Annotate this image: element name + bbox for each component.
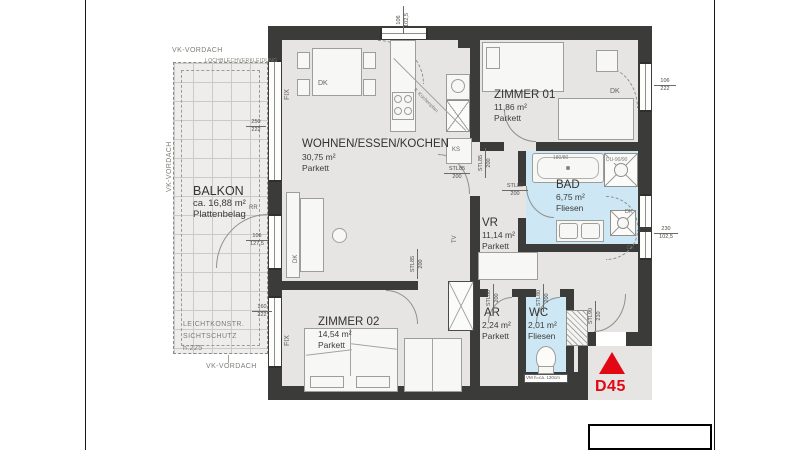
dim-door-bad: STL80200 [502,183,528,198]
pillow-zimmer02 [310,376,344,388]
nightstand-zimmer01 [596,50,618,72]
dk-label-zimmer01-window: DK [610,88,620,95]
dk-label-top-window: DK [318,80,328,87]
sofa-back [286,192,300,278]
dim-door-zimmer01: STL85200 [478,148,493,178]
vk-vordach-top-label: VK-VORDACH [172,47,223,54]
washing-machine-drum [617,217,629,229]
room-floor-zimmer01: Parkett [494,114,521,123]
dining-chair [297,79,310,96]
glazing-living-fix [269,60,281,182]
title-block-box [588,424,712,450]
dim-zimmer01-window: 106222 [654,78,676,93]
dk-label-balcony-door: DK [293,255,299,263]
unit-label: D45 [595,378,626,396]
coffee-table [332,228,347,243]
room-floor-bad: Fliesen [556,204,583,213]
sideboard-vr [478,252,538,280]
glazing-balcony-door [269,214,281,270]
room-area-zimmer01: 11,86 m² [494,103,527,112]
sofa-seat [300,198,324,272]
dim-door-wc: STL80200 [536,284,551,312]
washbasin [559,223,578,239]
page-edge-right [714,0,715,450]
fix-label-living: FIX [284,89,291,100]
dresser-zimmer01 [558,98,634,140]
wall-top [268,26,652,40]
dim-top-window: 106102,5 [396,6,411,34]
dim-door-living-vr: STL85200 [444,166,470,181]
dining-chair [363,79,376,96]
entry-door-opening [596,332,626,346]
wall-entry-niche-vertical [578,346,588,400]
room-floor-balkon: Plattenbelag [193,210,246,220]
wardrobe-zimmer02 [404,338,462,392]
burner [404,95,412,103]
burner [394,107,402,115]
installation-shaft [448,281,474,331]
dk-label-bad-window-upper: DK [625,210,633,216]
dining-table [312,48,362,96]
room-floor-zimmer02: Parkett [318,341,345,350]
dim-balcony-upper: 250222 [246,119,266,134]
vk-vordach-leader [228,355,229,363]
ks-fridge-label: KS [452,147,460,153]
leichtkonstr-label-2: SICHTSCHUTZ [183,333,237,340]
pillow-zimmer01 [486,47,500,69]
room-floor-wc: Fliesen [528,332,555,341]
tv-label: TV [452,235,458,243]
wall-zimmer01-south-b [536,142,652,151]
bathtub-size-label: 180/80 [553,156,568,161]
wardrobe-divider [432,338,433,392]
room-area-wohnen: 30,75 m² [302,153,336,162]
room-area-balkon: ca. 16,88 m² [193,199,246,209]
dim-balcony-lower: 160222 [252,304,272,319]
burner [404,107,412,115]
shower-size-label: DU-90/90 [606,158,627,163]
burner [394,95,402,103]
dining-chair [297,52,310,69]
vk-vordach-left-label: VK-VORDACH [166,141,173,192]
entry-marker-triangle [599,352,625,374]
rr-label: RR [249,205,258,211]
lochblech-label: LOCHBLECHVERKLEIDUNG [205,59,277,64]
room-area-vr: 11,14 m² [482,231,515,240]
wall-kitchen-zimmer01 [470,40,480,142]
floor-plan: WOHNEN/ESSEN/KOCHEN 30,75 m² Parkett ZIM… [0,0,800,450]
dim-entry-door: STL90210 [588,301,603,331]
wall-zimmer02-north [268,281,418,290]
leichtkonstr-label-3: h:225 [183,345,203,352]
dk-label-bad-window-lower: DK [627,246,635,252]
room-area-zimmer02: 14,54 m² [318,330,352,339]
shaft-hatched [566,310,588,346]
room-area-wc: 2,01 m² [528,321,557,330]
toilet-tank [538,366,554,374]
window-bad-mullion [640,227,651,232]
wall-bad-west-a [518,151,526,186]
room-label-vr: VR [482,218,498,230]
leichtkonstr-label-1: LEICHTKONSTR. [183,321,244,328]
room-floor-vr: Parkett [482,242,509,251]
room-label-zimmer02: ZIMMER 02 [318,317,379,329]
dining-chair [363,52,376,69]
dim-balcony-middle: 106127,5 [246,233,268,248]
window-zimmer01 [640,62,651,112]
shower-drain [614,163,628,177]
dim-door-ar: STL80200 [486,284,501,312]
room-floor-wohnen: Parkett [302,164,329,173]
washbasin [581,223,600,239]
room-label-wohnen: WOHNEN/ESSEN/KOCHEN [302,139,449,151]
room-area-bad: 6,75 m² [556,193,585,202]
dim-door-zimmer02: STL85200 [410,249,425,279]
wall-top-niche-stub [458,40,480,48]
bathtub-drain [566,166,570,170]
fix-label-zimmer02: FIX [284,335,291,346]
kitchen-sink [451,79,465,93]
wc-note-label: VM h=ca. 120cm [526,376,560,381]
dim-bad-window: 230102,5 [654,226,678,241]
room-label-zimmer01: ZIMMER 01 [494,90,555,102]
room-area-ar: 2,24 m² [482,321,511,330]
room-label-balkon: BALKON [193,185,244,198]
room-floor-ar: Parkett [482,332,509,341]
room-label-bad: BAD [556,180,580,192]
vk-vordach-bottom-label: VK-VORDACH [206,363,257,370]
pillow-zimmer02 [356,376,390,388]
page-edge-left [85,0,86,450]
